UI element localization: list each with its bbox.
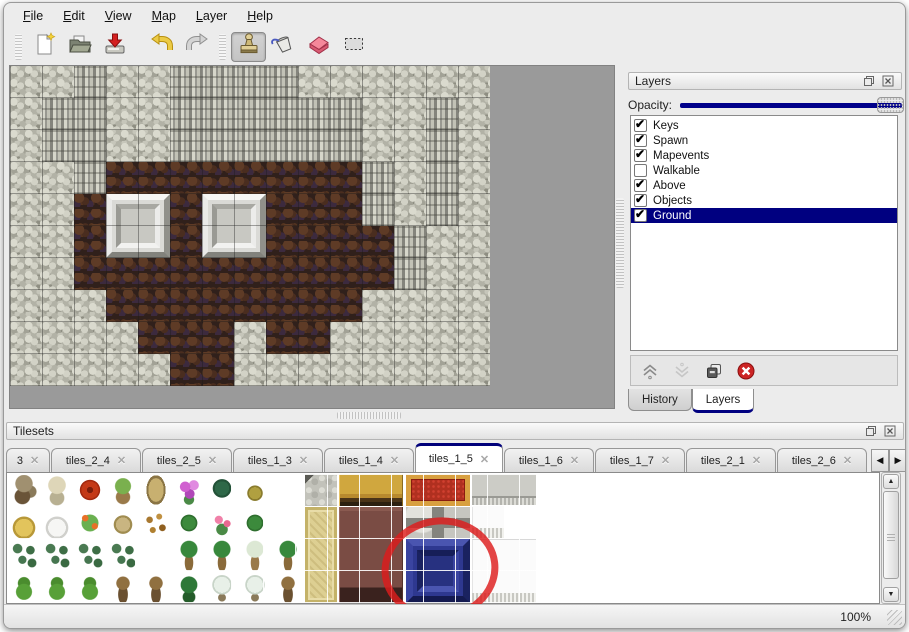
map-tile-rock[interactable] <box>362 130 394 162</box>
redo-button[interactable] <box>179 32 214 62</box>
tileset-sprite-hay[interactable] <box>8 507 40 539</box>
map-tile-floor[interactable] <box>138 258 170 290</box>
tileset-block-carpet[interactable] <box>406 474 470 506</box>
tileset-tab-3[interactable]: 3✕ <box>6 448 50 472</box>
map-tile-rock[interactable] <box>458 66 490 98</box>
map-tile-floor[interactable] <box>106 258 138 290</box>
tileset-tab-tiles_2_4[interactable]: tiles_2_4✕ <box>51 448 141 472</box>
scroll-up-icon[interactable]: ▲ <box>883 474 899 489</box>
map-tile-rock[interactable] <box>10 258 42 290</box>
tileset-sprite-bushes[interactable] <box>74 539 106 571</box>
tileset-block-maroon[interactable] <box>339 507 403 603</box>
map-tile-rock[interactable] <box>458 258 490 290</box>
map-tile-rock[interactable] <box>10 194 42 226</box>
map-tile-cliff[interactable] <box>234 130 266 162</box>
tileset-block-curtain[interactable] <box>472 474 536 505</box>
menu-help[interactable]: Help <box>238 6 282 26</box>
tileset-sprite-lilyPad[interactable] <box>239 507 271 539</box>
tab-label: tiles_1_4 <box>339 455 383 467</box>
map-tile-cliff[interactable] <box>202 98 234 130</box>
tab-close-icon[interactable]: ✕ <box>661 454 670 467</box>
map-tile-floor[interactable] <box>170 226 202 258</box>
stamp-tool-button[interactable] <box>231 32 266 62</box>
map-tile-floor[interactable] <box>170 290 202 322</box>
map-tile-rock[interactable] <box>234 322 266 354</box>
menu-layer[interactable]: Layer <box>187 6 236 26</box>
tileset-sprite-palm[interactable] <box>173 539 205 571</box>
map-tile-cliff[interactable] <box>170 66 202 98</box>
tab-close-icon[interactable]: ✕ <box>390 454 399 467</box>
map-tile-rock[interactable] <box>426 354 458 386</box>
map-tile-rock[interactable] <box>362 354 394 386</box>
layers-panel-title: Layers <box>635 74 671 88</box>
tileset-block-blue[interactable] <box>406 539 470 603</box>
layer-row-mapevents[interactable]: Mapevents <box>631 148 897 163</box>
tileset-sprite-stump[interactable] <box>107 474 139 506</box>
map-tile-rock[interactable] <box>458 162 490 194</box>
map-tile-floor[interactable] <box>170 258 202 290</box>
map-tile-cliff[interactable] <box>394 258 426 290</box>
map-tile-floor[interactable] <box>170 354 202 386</box>
save-icon <box>101 31 129 62</box>
duplicate-layer-button[interactable] <box>703 360 725 382</box>
tileset-sprite-fernDark[interactable] <box>206 474 238 506</box>
map-tile-rock[interactable] <box>138 66 170 98</box>
layer-checkbox-walkable[interactable] <box>634 164 647 177</box>
toolbar-drag-handle[interactable] <box>219 34 226 60</box>
map-tile-cliff[interactable] <box>42 98 74 130</box>
map-tile-rock[interactable] <box>298 354 330 386</box>
map-tile-floor[interactable] <box>170 194 202 226</box>
tileset-block-whitebig[interactable] <box>472 539 536 603</box>
tileset-sprite-bushes[interactable] <box>8 539 40 571</box>
tileset-tab-tiles_2_5[interactable]: tiles_2_5✕ <box>142 448 232 472</box>
map-tile-floor[interactable] <box>234 290 266 322</box>
map-tile-cliff[interactable] <box>266 130 298 162</box>
map-tile-rock[interactable] <box>138 98 170 130</box>
map-tile-floor[interactable] <box>266 162 298 194</box>
tileset-sprite-flowerPurple[interactable] <box>173 474 205 506</box>
map-tile-rock[interactable] <box>42 322 74 354</box>
tileset-sprite-snowMound[interactable] <box>41 507 73 539</box>
menu-edit[interactable]: Edit <box>54 6 94 26</box>
tileset-sprite-treePale[interactable] <box>41 474 73 506</box>
map-tile-rock[interactable] <box>426 226 458 258</box>
map-tile-floor[interactable] <box>362 258 394 290</box>
tileset-content[interactable] <box>6 472 880 604</box>
map-tile-cliff[interactable] <box>426 98 458 130</box>
map-tile-floor[interactable] <box>362 226 394 258</box>
layer-checkbox-keys[interactable] <box>634 119 647 132</box>
map-tile-rock[interactable] <box>394 290 426 322</box>
tab-close-icon[interactable]: ✕ <box>299 454 308 467</box>
tileset-sprite-plantSpider[interactable] <box>239 474 271 506</box>
tileset-sprite-palm[interactable] <box>272 539 304 571</box>
tileset-block-grayblocks[interactable] <box>406 507 470 538</box>
map-tile-rock[interactable] <box>106 354 138 386</box>
map-tile-floor[interactable] <box>74 226 106 258</box>
tab-label: tiles_1_6 <box>519 455 563 467</box>
tileset-sprite-bushes[interactable] <box>107 539 139 571</box>
map-tile-cliff[interactable] <box>426 130 458 162</box>
delete-layer-button[interactable] <box>735 360 757 382</box>
map-tile-cliff[interactable] <box>234 98 266 130</box>
tileset-sprite-twistTree[interactable] <box>107 572 139 604</box>
map-tile-cliff[interactable] <box>74 66 106 98</box>
layer-checkbox-ground[interactable] <box>634 209 647 222</box>
map-tile-floor[interactable] <box>298 162 330 194</box>
tileset-sprite-snowTree[interactable] <box>239 572 271 604</box>
map-tile-rock[interactable] <box>266 354 298 386</box>
map-tile-rock[interactable] <box>42 258 74 290</box>
opacity-row: Opacity: <box>628 95 902 115</box>
map-tile-cliff[interactable] <box>426 162 458 194</box>
layer-name: Ground <box>653 210 691 222</box>
map-tile-cliff[interactable] <box>74 162 106 194</box>
map-tile-floor[interactable] <box>106 290 138 322</box>
map-tile-rock[interactable] <box>234 354 266 386</box>
map-tile-cliff[interactable] <box>42 130 74 162</box>
tileset-tab-tiles_1_5[interactable]: tiles_1_5✕ <box>415 443 503 472</box>
map-tile-cliff[interactable] <box>330 98 362 130</box>
map-tile-cliff[interactable] <box>330 130 362 162</box>
opacity-slider-handle[interactable] <box>877 97 904 113</box>
map-tile-floor[interactable] <box>202 258 234 290</box>
app-window: FileEditViewMapLayerHelp Layers Opacity:… <box>3 2 906 629</box>
tab-label: 3 <box>17 455 23 467</box>
tab-label: tiles_1_7 <box>610 455 654 467</box>
layer-list: KeysSpawnMapeventsWalkableAboveObjectsGr… <box>630 115 898 351</box>
map-tile-floor[interactable] <box>74 194 106 226</box>
map-tile-rock[interactable] <box>458 322 490 354</box>
map-tile-rock[interactable] <box>74 290 106 322</box>
map-tile-cliff[interactable] <box>202 66 234 98</box>
map-tile-floor[interactable] <box>298 322 330 354</box>
tileset-tab-tiles_2_1[interactable]: tiles_2_1✕ <box>686 448 776 472</box>
map-canvas[interactable] <box>9 65 615 409</box>
map-tile-cliff[interactable] <box>426 194 458 226</box>
tab-close-icon[interactable]: ✕ <box>570 454 579 467</box>
layer-checkbox-spawn[interactable] <box>634 134 647 147</box>
map-tile-rock[interactable] <box>458 194 490 226</box>
map-tile-rock[interactable] <box>362 322 394 354</box>
map-tile-cliff[interactable] <box>266 98 298 130</box>
tileset-sprite-bushes[interactable] <box>41 539 73 571</box>
layer-name: Above <box>653 180 686 192</box>
map-tile-floor[interactable] <box>202 322 234 354</box>
map-tile-rock[interactable] <box>394 322 426 354</box>
map-tile-rock[interactable] <box>10 354 42 386</box>
tab-close-icon[interactable]: ✕ <box>843 454 852 467</box>
dock-tab-history[interactable]: History <box>628 389 692 411</box>
tileset-sprite-snowPalm[interactable] <box>239 539 271 571</box>
tileset-tab-tiles_2_6[interactable]: tiles_2_6✕ <box>777 448 867 472</box>
tileset-sprite-palm[interactable] <box>206 539 238 571</box>
layer-row-above[interactable]: Above <box>631 178 897 193</box>
layer-row-spawn[interactable]: Spawn <box>631 133 897 148</box>
toolbar <box>4 28 905 65</box>
map-tile-cliff[interactable] <box>202 130 234 162</box>
move-up-button[interactable] <box>639 360 661 382</box>
map-tile-cliff[interactable] <box>362 194 394 226</box>
tileset-sprite-pineBush[interactable] <box>41 572 73 604</box>
map-tile-rock[interactable] <box>138 354 170 386</box>
dock-tabs: HistoryLayers <box>628 389 754 415</box>
map-tile-floor[interactable] <box>74 258 106 290</box>
map-tile-rock[interactable] <box>362 290 394 322</box>
tilesets-float-button[interactable] <box>863 424 878 438</box>
undo-button[interactable] <box>144 32 179 62</box>
map-tile-rock[interactable] <box>106 130 138 162</box>
tileset-sprite-flowerRed[interactable] <box>74 474 106 506</box>
map-tile-rock[interactable] <box>394 130 426 162</box>
tileset-sprite-twistTree[interactable] <box>272 572 304 604</box>
map-tile-rock[interactable] <box>10 322 42 354</box>
tab-close-icon[interactable]: ✕ <box>752 454 761 467</box>
new-file-icon <box>31 31 59 62</box>
map-tile-cliff[interactable] <box>394 226 426 258</box>
map-tile-floor[interactable] <box>330 194 362 226</box>
tab-label: tiles_1_5 <box>429 453 473 465</box>
tab-label: tiles_1_3 <box>248 455 292 467</box>
map-tile-rock[interactable] <box>458 354 490 386</box>
tileset-block-stone[interactable] <box>305 474 337 506</box>
map-tile-rock[interactable] <box>330 322 362 354</box>
fill-bucket-tool-icon <box>270 31 298 62</box>
map-tile-cliff[interactable] <box>362 162 394 194</box>
map-tile-rock[interactable] <box>42 162 74 194</box>
map-tile-rock[interactable] <box>458 226 490 258</box>
layer-row-ground[interactable]: Ground <box>631 208 897 223</box>
scroll-left-button[interactable]: ◀ <box>871 449 889 472</box>
opacity-slider[interactable] <box>680 103 902 108</box>
blue-block-inner <box>417 550 459 592</box>
tileset-sprite-treeGreen[interactable] <box>173 572 205 604</box>
toolbar-drag-handle[interactable] <box>15 34 22 60</box>
map-tile-floor[interactable] <box>330 162 362 194</box>
map-tile-rock[interactable] <box>42 290 74 322</box>
pillar-inner <box>116 204 160 248</box>
layer-buttons <box>630 355 898 386</box>
layers-close-button[interactable] <box>880 74 895 88</box>
menu-map[interactable]: Map <box>143 6 185 26</box>
scroll-right-button[interactable]: ▶ <box>889 449 906 472</box>
horizontal-splitter-handle[interactable] <box>337 412 401 419</box>
map-tile-floor[interactable] <box>234 258 266 290</box>
map-tile-rock[interactable] <box>10 66 42 98</box>
map-tile-rock[interactable] <box>10 98 42 130</box>
tab-close-icon[interactable]: ✕ <box>208 454 217 467</box>
tileset-block-gold[interactable] <box>339 474 403 506</box>
tileset-tab-tiles_1_7[interactable]: tiles_1_7✕ <box>595 448 685 472</box>
layer-row-objects[interactable]: Objects <box>631 193 897 208</box>
tilesets-close-button[interactable] <box>882 424 897 438</box>
map-tile-floor[interactable] <box>202 290 234 322</box>
menu-file[interactable]: File <box>14 6 52 26</box>
map-tile-rock[interactable] <box>10 162 42 194</box>
map-tile-rock[interactable] <box>330 66 362 98</box>
tab-label: tiles_2_1 <box>701 455 745 467</box>
tilesets-panel-titlebar: Tilesets <box>6 422 904 440</box>
tab-label: tiles_2_4 <box>66 455 110 467</box>
map-tile-rock[interactable] <box>138 130 170 162</box>
map-tile-floor[interactable] <box>330 290 362 322</box>
map-tile-rock[interactable] <box>426 258 458 290</box>
scrollbar-thumb[interactable] <box>883 491 899 579</box>
map-tile-floor[interactable] <box>138 290 170 322</box>
map-tile-rock[interactable] <box>106 322 138 354</box>
rect-select-tool-icon <box>340 31 368 62</box>
map-pillar[interactable] <box>202 194 266 258</box>
map-tile-floor[interactable] <box>298 258 330 290</box>
layer-row-walkable[interactable]: Walkable <box>631 163 897 178</box>
layer-checkbox-objects[interactable] <box>634 194 647 207</box>
scroll-down-icon[interactable]: ▼ <box>883 587 899 602</box>
map-tile-floor[interactable] <box>266 258 298 290</box>
move-down-button[interactable] <box>671 360 693 382</box>
map-tile-rock[interactable] <box>394 194 426 226</box>
map-tile-rock[interactable] <box>394 354 426 386</box>
tileset-sprite-leaves[interactable] <box>140 507 172 539</box>
stamp-tool-icon <box>235 31 263 62</box>
tileset-sprite-dryGrass[interactable] <box>107 507 139 539</box>
map-tile-rock[interactable] <box>458 290 490 322</box>
map-tile-rock[interactable] <box>10 290 42 322</box>
layers-panel-titlebar: Layers <box>628 72 902 90</box>
map-tile-cliff[interactable] <box>234 66 266 98</box>
map-tile-rock[interactable] <box>394 98 426 130</box>
map-tile-cliff[interactable] <box>74 130 106 162</box>
layer-checkbox-above[interactable] <box>634 179 647 192</box>
map-tile-floor[interactable] <box>266 290 298 322</box>
map-tile-floor[interactable] <box>138 322 170 354</box>
layer-name: Objects <box>653 195 692 207</box>
map-tile-floor[interactable] <box>202 162 234 194</box>
map-tile-rock[interactable] <box>426 322 458 354</box>
tileset-sprite-pineBush[interactable] <box>74 572 106 604</box>
map-tile-floor[interactable] <box>234 162 266 194</box>
map[interactable] <box>10 66 490 386</box>
map-tile-rock[interactable] <box>106 66 138 98</box>
map-tile-rock[interactable] <box>362 98 394 130</box>
map-tile-rock[interactable] <box>42 226 74 258</box>
map-tile-floor[interactable] <box>330 226 362 258</box>
map-tile-rock[interactable] <box>74 322 106 354</box>
tileset-sprite-pineBush[interactable] <box>8 572 40 604</box>
rect-select-tool-button[interactable] <box>336 32 371 62</box>
new-file-button[interactable] <box>27 32 62 62</box>
eraser-tool-button[interactable] <box>301 32 336 62</box>
map-tile-rock[interactable] <box>426 290 458 322</box>
tileset-tab-tiles_1_6[interactable]: tiles_1_6✕ <box>504 448 594 472</box>
zoom-level: 100% <box>840 610 871 624</box>
menu-view[interactable]: View <box>96 6 141 26</box>
map-tile-rock[interactable] <box>10 130 42 162</box>
tileset-sprite-roses[interactable] <box>206 507 238 539</box>
map-tile-floor[interactable] <box>266 194 298 226</box>
map-tile-rock[interactable] <box>426 66 458 98</box>
map-tile-rock[interactable] <box>42 66 74 98</box>
tab-close-icon[interactable]: ✕ <box>117 454 126 467</box>
map-tile-floor[interactable] <box>202 354 234 386</box>
map-tile-floor[interactable] <box>330 258 362 290</box>
map-tile-cliff[interactable] <box>170 98 202 130</box>
tileset-scrollbar[interactable]: ▲ ▼ <box>881 472 901 604</box>
fill-bucket-tool-button[interactable] <box>266 32 301 62</box>
map-tile-cliff[interactable] <box>170 130 202 162</box>
tileset-sprite-treeDead[interactable] <box>8 474 40 506</box>
map-tile-floor[interactable] <box>170 162 202 194</box>
map-tile-floor[interactable] <box>298 194 330 226</box>
map-tile-floor[interactable] <box>266 322 298 354</box>
menu-bar: FileEditViewMapLayerHelp <box>4 3 905 28</box>
tileset-sprite-trunkTan[interactable] <box>140 474 172 506</box>
tileset-tab-tiles_1_4[interactable]: tiles_1_4✕ <box>324 448 414 472</box>
tileset-sprite-twistTree[interactable] <box>140 572 172 604</box>
map-tile-rock[interactable] <box>394 66 426 98</box>
map-tile-rock[interactable] <box>330 354 362 386</box>
map-tile-cliff[interactable] <box>298 130 330 162</box>
map-tile-rock[interactable] <box>362 66 394 98</box>
map-tile-rock[interactable] <box>42 194 74 226</box>
map-tile-floor[interactable] <box>170 322 202 354</box>
layer-row-keys[interactable]: Keys <box>631 118 897 133</box>
status-bar: 100% <box>4 604 905 628</box>
layers-float-button[interactable] <box>861 74 876 88</box>
map-tile-cliff[interactable] <box>298 98 330 130</box>
map-tile-floor[interactable] <box>298 290 330 322</box>
dock-tab-layers[interactable]: Layers <box>692 389 755 413</box>
tileset-block-whitefringe[interactable] <box>472 506 504 538</box>
tileset-block-khaki[interactable] <box>305 507 337 603</box>
map-tile-floor[interactable] <box>298 226 330 258</box>
tileset-sprite-lilyPad[interactable] <box>173 507 205 539</box>
tileset-tab-bar: 3✕tiles_2_4✕tiles_2_5✕tiles_1_3✕tiles_1_… <box>4 443 906 472</box>
map-tile-rock[interactable] <box>74 354 106 386</box>
map-tile-rock[interactable] <box>42 354 74 386</box>
opacity-label: Opacity: <box>628 98 672 112</box>
map-tile-floor[interactable] <box>266 226 298 258</box>
tab-close-icon[interactable]: ✕ <box>30 454 39 467</box>
map-tile-floor[interactable] <box>138 162 170 194</box>
layer-name: Mapevents <box>653 150 709 162</box>
map-tile-rock[interactable] <box>458 98 490 130</box>
tileset-sprite-flowerPatch[interactable] <box>74 507 106 539</box>
vertical-splitter-handle[interactable] <box>616 198 624 288</box>
resize-grip[interactable] <box>887 610 902 625</box>
map-tile-floor[interactable] <box>106 162 138 194</box>
tileset-tab-tiles_1_3[interactable]: tiles_1_3✕ <box>233 448 323 472</box>
open-folder-button[interactable] <box>62 32 97 62</box>
map-tile-cliff[interactable] <box>266 66 298 98</box>
save-button[interactable] <box>97 32 132 62</box>
pillar-inner <box>212 204 256 248</box>
layer-checkbox-mapevents[interactable] <box>634 149 647 162</box>
tab-close-icon[interactable]: ✕ <box>480 453 489 466</box>
map-tile-rock[interactable] <box>106 98 138 130</box>
map-tile-rock[interactable] <box>298 66 330 98</box>
open-folder-icon <box>66 31 94 62</box>
map-tile-cliff[interactable] <box>74 98 106 130</box>
tilesets-panel-title: Tilesets <box>13 424 54 438</box>
map-tile-rock[interactable] <box>394 162 426 194</box>
layer-name: Spawn <box>653 135 688 147</box>
map-pillar[interactable] <box>106 194 170 258</box>
map-tile-rock[interactable] <box>458 130 490 162</box>
eraser-tool-icon <box>305 31 333 62</box>
map-tile-rock[interactable] <box>10 226 42 258</box>
tileset-sprite-snowTree[interactable] <box>206 572 238 604</box>
